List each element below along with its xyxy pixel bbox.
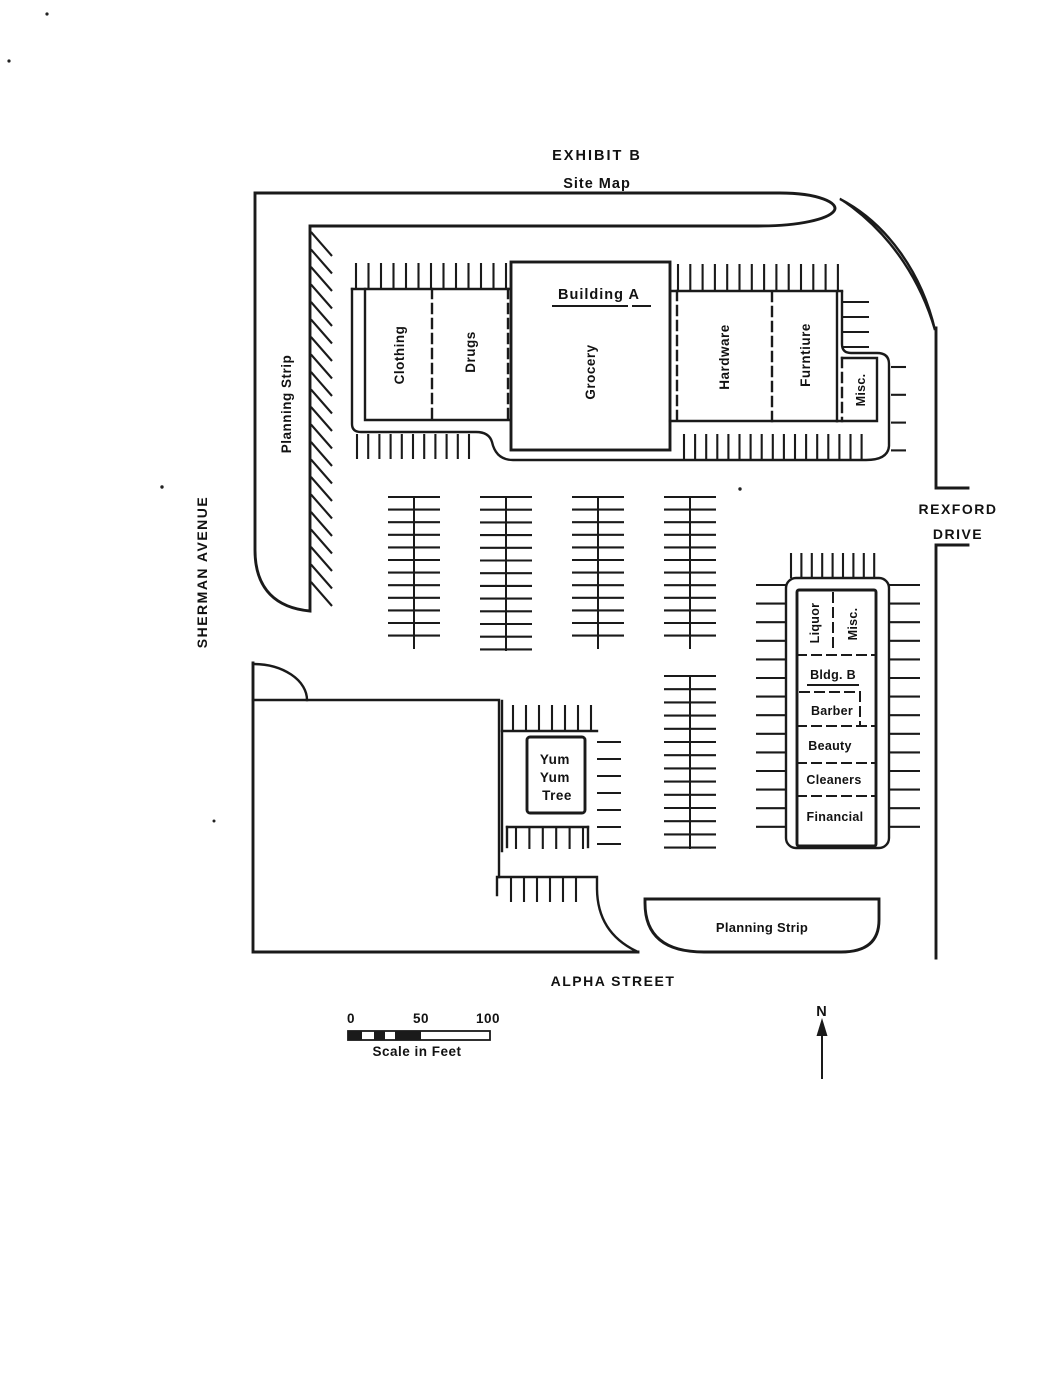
drugs-unit-label: Drugs [463, 331, 478, 373]
alpha-street-label: ALPHA STREET [551, 973, 676, 989]
bldgb-misc-unit-label: Misc. [846, 608, 860, 641]
scale-segment [348, 1031, 362, 1040]
site-map-canvas: EXHIBIT B Site Map Planning Strip REXFOR… [0, 0, 1061, 1380]
building-a-title: Building A [558, 287, 640, 303]
furniture-unit-label: Furntiure [798, 323, 813, 387]
parking-ticks-south-piece [511, 877, 576, 902]
parking-ticks-misc-east [891, 367, 906, 450]
scale-segment [374, 1031, 385, 1040]
west-strip-hatch [311, 232, 332, 606]
barber-unit-label: Barber [811, 704, 853, 718]
misc-unit-label: Misc. [854, 374, 868, 407]
north-arrow: N [816, 1004, 827, 1078]
beauty-unit-label: Beauty [808, 739, 851, 753]
scale-tick-100: 100 [476, 1011, 500, 1026]
scan-speck [738, 487, 741, 490]
driveway-curb-return [253, 664, 307, 700]
site-map-subtitle: Site Map [563, 176, 631, 192]
sherman-avenue-label: SHERMAN AVENUE [194, 496, 210, 648]
scale-segment [385, 1031, 395, 1040]
rexford-drive-line [936, 328, 968, 958]
financial-unit-label: Financial [807, 810, 864, 824]
exhibit-title: EXHIBIT B [552, 148, 642, 164]
parking-ticks-bldgb-east [889, 585, 920, 827]
scale-segment [362, 1031, 374, 1040]
scale-caption: Scale in Feet [372, 1044, 461, 1059]
scale-tick-0: 0 [347, 1011, 355, 1026]
liquor-unit-label: Liquor [808, 603, 822, 644]
rexford-label-line1: REXFORD [919, 501, 998, 517]
scale-segment [395, 1031, 421, 1040]
south-parking-outline [497, 877, 636, 951]
north-label: N [816, 1004, 827, 1020]
rexford-label-line2: DRIVE [933, 526, 983, 542]
parking-ticks-bldga-top-right [678, 264, 838, 291]
scan-speck [45, 12, 48, 15]
scan-speck [7, 59, 10, 62]
north-arrow-head [817, 1018, 828, 1036]
planning-strip-south-band: Planning Strip [645, 899, 879, 952]
building-b-title: Bldg. B [810, 668, 856, 682]
scale-bar: 0 50 100 Scale in Feet [347, 1011, 500, 1059]
parking-ticks-bldga-bottom-right [684, 434, 862, 459]
hardware-unit-label: Hardware [717, 324, 732, 390]
yum-label: Yum Yum Tree [540, 752, 574, 803]
rexford-curve-edge [840, 199, 935, 330]
planning-strip-west-label: Planning Strip [279, 355, 294, 454]
scan-speck [213, 820, 216, 823]
scale-tick-50: 50 [413, 1011, 429, 1026]
parking-ticks-yum-top [513, 705, 591, 731]
parking-ticks-bldga-top-left [356, 263, 506, 289]
parking-ticks-bldgb-top [791, 553, 874, 578]
building-b: Liquor Misc. Bldg. B Barber Beauty Clean… [786, 578, 889, 848]
south-parking-piece [497, 877, 636, 951]
building-a: Building A Clothing Drugs Grocery Hardwa… [352, 262, 889, 460]
parking-ticks-bldga-bottom-left [357, 434, 469, 459]
parcel-inner-boundary [253, 700, 499, 877]
parking-ticks-bldgb-west [756, 585, 786, 827]
parking-ticks-furniture-east [843, 302, 869, 347]
building-a-left-units-wall [365, 289, 511, 420]
grocery-unit-label: Grocery [583, 344, 598, 399]
scan-speck [160, 485, 163, 488]
parking-ticks-yum-east [597, 742, 621, 844]
cleaners-unit-label: Cleaners [806, 773, 861, 787]
scale-segment [421, 1031, 490, 1040]
planning-strip-south-label: Planning Strip [716, 920, 808, 935]
clothing-unit-label: Clothing [392, 326, 407, 385]
parking-ticks-yum-bottom [516, 827, 583, 849]
